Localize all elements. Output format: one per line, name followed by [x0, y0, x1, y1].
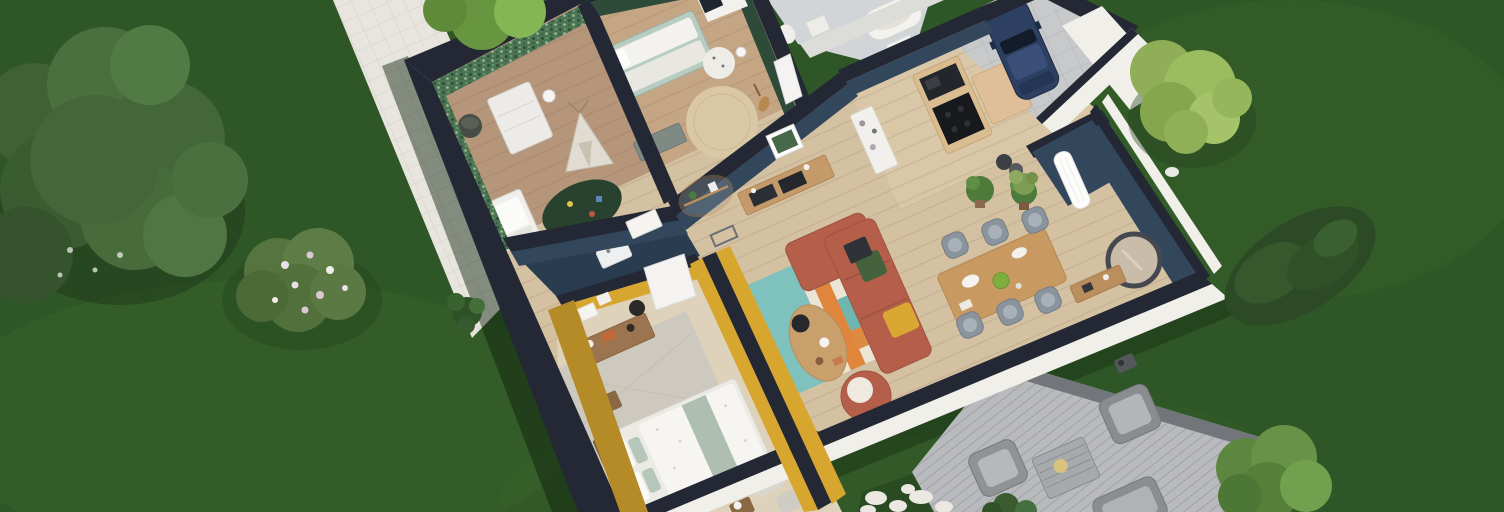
nursery-lamp: [543, 90, 555, 102]
floor-lamp: [736, 47, 746, 57]
floorplan-render: 3D aerial floor plan of a single-storey …: [0, 0, 1504, 512]
bean-bag: [703, 47, 735, 79]
wall-hat: [629, 300, 645, 316]
pebble: [1165, 167, 1179, 177]
scene-canvas: 3D aerial floor plan of a single-storey …: [0, 0, 1504, 512]
